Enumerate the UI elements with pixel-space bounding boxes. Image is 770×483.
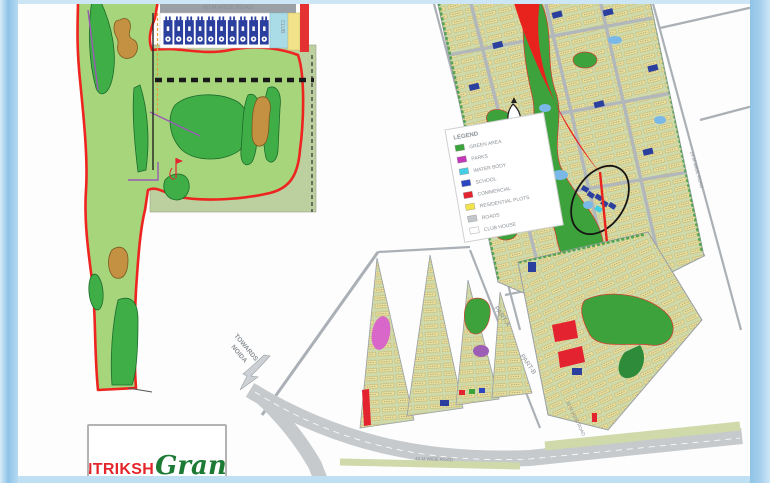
tower-block-lower-2 — [528, 262, 536, 272]
legend-chip-5 — [465, 203, 475, 210]
amenity-blocks-magenta — [693, 51, 709, 81]
legend-chip-6 — [467, 215, 477, 222]
red-strip — [300, 0, 309, 52]
legend-chip-4 — [463, 191, 473, 198]
legend-chip-2 — [459, 168, 469, 175]
legend-chip-1 — [457, 156, 467, 163]
towards-label: TOWARDS NOIDA — [229, 333, 270, 390]
left-map-top-block: 60 M WIDE ROAD CLUB — [160, 0, 309, 52]
legend-chip-7 — [469, 227, 479, 234]
yellow-strip — [288, 13, 300, 50]
frame-left-border — [0, 0, 18, 483]
club-block-label: CLUB — [279, 20, 285, 34]
school-block-blue — [440, 400, 449, 406]
bottom-road-band — [250, 390, 742, 483]
masterplan-artwork: TOWARDS NOIDA PART-A PART-B 60 M WIDE RO… — [0, 0, 770, 483]
legend-box: LEGEND GREEN AREA PARKS WATER BODY SCHOO… — [445, 113, 563, 243]
road-label-right: 24 M WIDE ROAD — [689, 151, 704, 190]
frame-top-border — [0, 0, 770, 4]
logo-box: ANTRIKSHGrand — [87, 424, 227, 483]
small-red-block — [592, 413, 597, 422]
top-road-strip-label: 60 M WIDE ROAD — [203, 5, 253, 11]
frame-bottom-border — [0, 476, 770, 483]
amenity-blob-purple — [473, 345, 489, 357]
frame-right-border — [750, 0, 770, 483]
golf-blob-wedge — [464, 298, 490, 334]
tower-block-lower — [572, 368, 582, 375]
masterplan-poster: TOWARDS NOIDA PART-A PART-B 60 M WIDE RO… — [0, 0, 770, 483]
legend-chip-3 — [461, 179, 471, 186]
legend-chip-0 — [455, 144, 465, 151]
golf-course-map: 60 M WIDE ROAD CLUB — [78, 0, 317, 392]
